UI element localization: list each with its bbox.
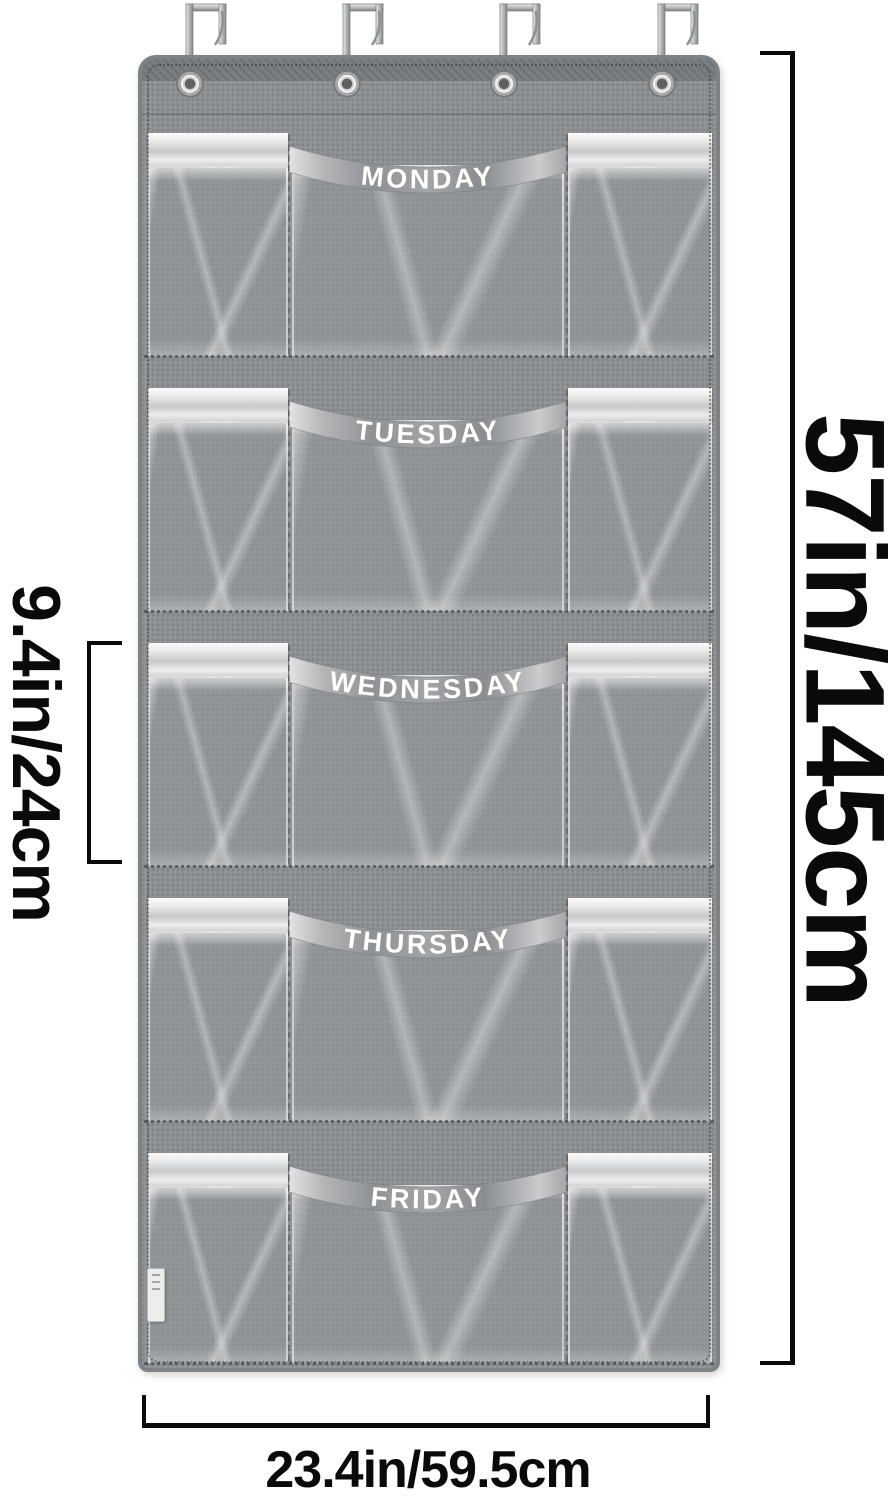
row-height-dimension-line <box>87 641 122 864</box>
satin-trim <box>568 898 712 931</box>
day-label-band: MONDAY <box>285 138 571 202</box>
day-label: MONDAY <box>360 161 496 195</box>
stitch-line <box>144 610 714 613</box>
svg-text:FRIDAY: FRIDAY <box>370 1182 487 1215</box>
pocket-row-friday: FRIDAY <box>142 1153 716 1365</box>
clear-vinyl-pocket <box>568 676 712 866</box>
svg-text:WEDNESDAY: WEDNESDAY <box>328 666 529 705</box>
pocket-row-monday: MONDAY <box>142 133 716 358</box>
small-pocket-right <box>568 898 712 1123</box>
satin-trim <box>568 388 712 421</box>
metal-grommet <box>175 70 205 100</box>
stitch-line <box>144 355 714 358</box>
svg-text:MONDAY: MONDAY <box>360 161 496 195</box>
small-pocket-right <box>568 1153 712 1365</box>
center-pocket: FRIDAY <box>292 1153 564 1365</box>
metal-grommet <box>332 70 362 100</box>
day-label-band: THURSDAY <box>285 903 571 967</box>
clear-vinyl-pocket <box>148 1186 288 1363</box>
stitch-line <box>288 390 290 609</box>
stitch-line <box>566 135 568 354</box>
pocket-row-thursday: THURSDAY <box>142 898 716 1123</box>
day-label: TUESDAY <box>354 415 503 450</box>
top-binding-strip <box>142 59 716 81</box>
clear-vinyl-pocket <box>568 166 712 356</box>
svg-text:THURSDAY: THURSDAY <box>342 923 514 960</box>
satin-trim <box>148 133 288 166</box>
stitch-line <box>144 1362 714 1365</box>
svg-text:TUESDAY: TUESDAY <box>354 415 503 450</box>
day-label: FRIDAY <box>370 1182 487 1215</box>
stitch-line <box>144 865 714 868</box>
side-label-tag <box>147 1268 165 1322</box>
center-pocket: WEDNESDAY <box>292 643 564 868</box>
satin-trim <box>148 1153 288 1186</box>
pocket-row-tuesday: TUESDAY <box>142 388 716 613</box>
small-pocket-right <box>568 133 712 358</box>
width-dimension-line <box>142 1395 710 1428</box>
stitch-line <box>288 135 290 354</box>
stitch-line <box>288 645 290 864</box>
stitch-line <box>566 900 568 1119</box>
small-pocket-left <box>148 388 288 613</box>
clear-vinyl-pocket <box>568 931 712 1121</box>
small-pocket-right <box>568 643 712 868</box>
clear-vinyl-pocket <box>148 166 288 356</box>
day-label: WEDNESDAY <box>328 666 529 705</box>
top-seam <box>142 113 716 115</box>
clear-vinyl-pocket <box>148 676 288 866</box>
product-image: MONDAY TUESDAY <box>0 0 889 1500</box>
center-pocket: THURSDAY <box>292 898 564 1123</box>
satin-trim <box>568 133 712 166</box>
small-pocket-left <box>148 898 288 1123</box>
day-label-band: FRIDAY <box>285 1158 571 1222</box>
small-pocket-left <box>148 643 288 868</box>
day-label-band: TUESDAY <box>285 393 571 457</box>
clear-vinyl-pocket <box>568 421 712 611</box>
clear-vinyl-pocket <box>148 931 288 1121</box>
satin-trim <box>148 643 288 676</box>
small-pocket-right <box>568 388 712 613</box>
stitch-line <box>566 1155 568 1361</box>
row-height-dimension-label: 9.4in/24cm <box>0 584 75 922</box>
satin-trim <box>568 1153 712 1186</box>
satin-trim <box>148 388 288 421</box>
stitch-line <box>566 390 568 609</box>
pocket-row-wednesday: WEDNESDAY <box>142 643 716 868</box>
width-dimension-label: 23.4in/59.5cm <box>265 1440 590 1500</box>
height-dimension-label: 57in/145cm <box>781 413 889 1007</box>
small-pocket-left <box>148 1153 288 1365</box>
stitch-line <box>566 645 568 864</box>
stitch-line <box>288 900 290 1119</box>
small-pocket-left <box>148 133 288 358</box>
satin-trim <box>148 898 288 931</box>
clear-vinyl-pocket <box>148 421 288 611</box>
clear-vinyl-pocket <box>568 1186 712 1363</box>
day-label: THURSDAY <box>342 923 514 960</box>
stitch-line <box>288 1155 290 1361</box>
center-pocket: MONDAY <box>292 133 564 358</box>
organizer-body: MONDAY TUESDAY <box>138 55 720 1372</box>
stitch-line <box>144 1120 714 1123</box>
metal-grommet <box>489 70 519 100</box>
metal-grommet <box>647 70 677 100</box>
center-pocket: TUESDAY <box>292 388 564 613</box>
satin-trim <box>568 643 712 676</box>
day-label-band: WEDNESDAY <box>285 648 571 712</box>
